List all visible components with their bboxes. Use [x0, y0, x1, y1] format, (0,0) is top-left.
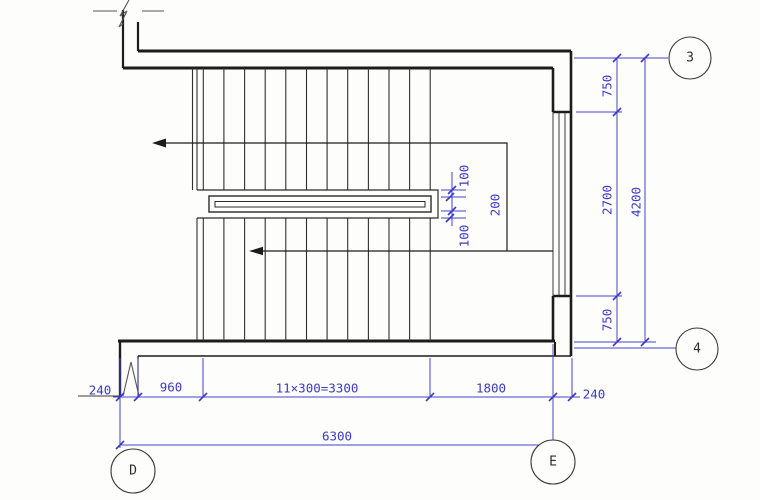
dim-well-gap-top: 100: [457, 165, 472, 188]
stair-treads-upper: [193, 68, 431, 190]
dim-wall-right: 240: [583, 387, 606, 402]
stair-treads-lower: [197, 218, 430, 341]
break-line-bottom-icon: [123, 362, 139, 396]
grid-bubble-3-label: 3: [686, 51, 694, 66]
dim-entry-width: 960: [160, 380, 183, 395]
dim-top-offset: 750: [600, 75, 615, 98]
grid-bubble-4-label: 4: [693, 342, 701, 357]
grid-bubble-d-label: D: [129, 464, 137, 479]
grid-bubbles: [111, 37, 718, 493]
window-symbol: [553, 112, 565, 296]
stair-plan-drawing: 240 960 11×300=3300 1800 240 6300 750 27…: [0, 0, 760, 500]
dim-wall-left: 240: [89, 383, 112, 398]
dim-landing-width: 1800: [476, 381, 506, 396]
drawing-linework: [0, 0, 760, 500]
dim-well-gap-bottom: 100: [457, 225, 472, 248]
wall-outline: [118, 10, 571, 397]
dim-bottom-offset: 750: [600, 309, 615, 332]
stair-well-rail: [197, 190, 438, 218]
dim-total-height: 4200: [629, 187, 644, 217]
dim-total-width: 6300: [322, 429, 352, 444]
dim-handrail-width: 200: [488, 194, 503, 217]
break-line-top-icon: [93, 0, 164, 27]
dim-treads: 11×300=3300: [276, 381, 359, 396]
dim-window-width: 2700: [600, 185, 615, 215]
grid-bubble-e-label: E: [549, 455, 557, 470]
